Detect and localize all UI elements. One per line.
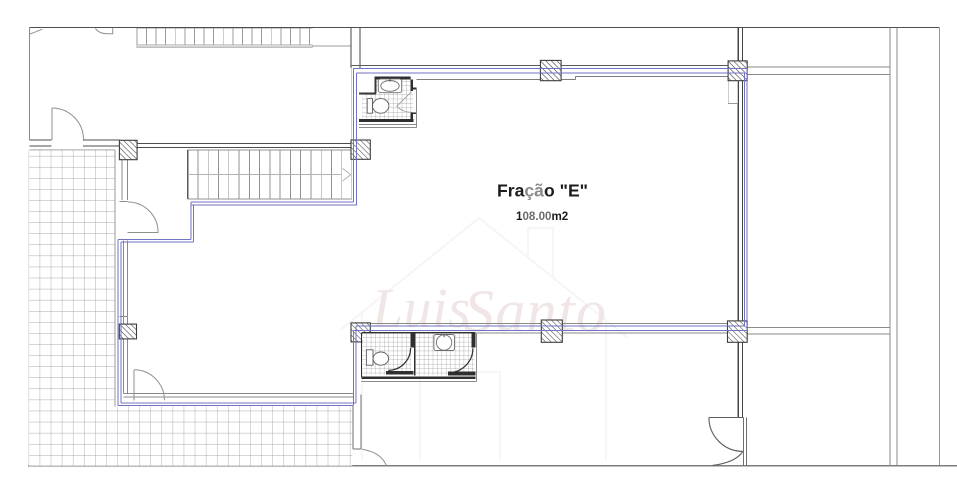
svg-text:Santo: Santo [464, 278, 606, 344]
svg-text:Fração "E": Fração "E" [497, 181, 588, 201]
svg-text:108.00m2: 108.00m2 [516, 210, 568, 223]
